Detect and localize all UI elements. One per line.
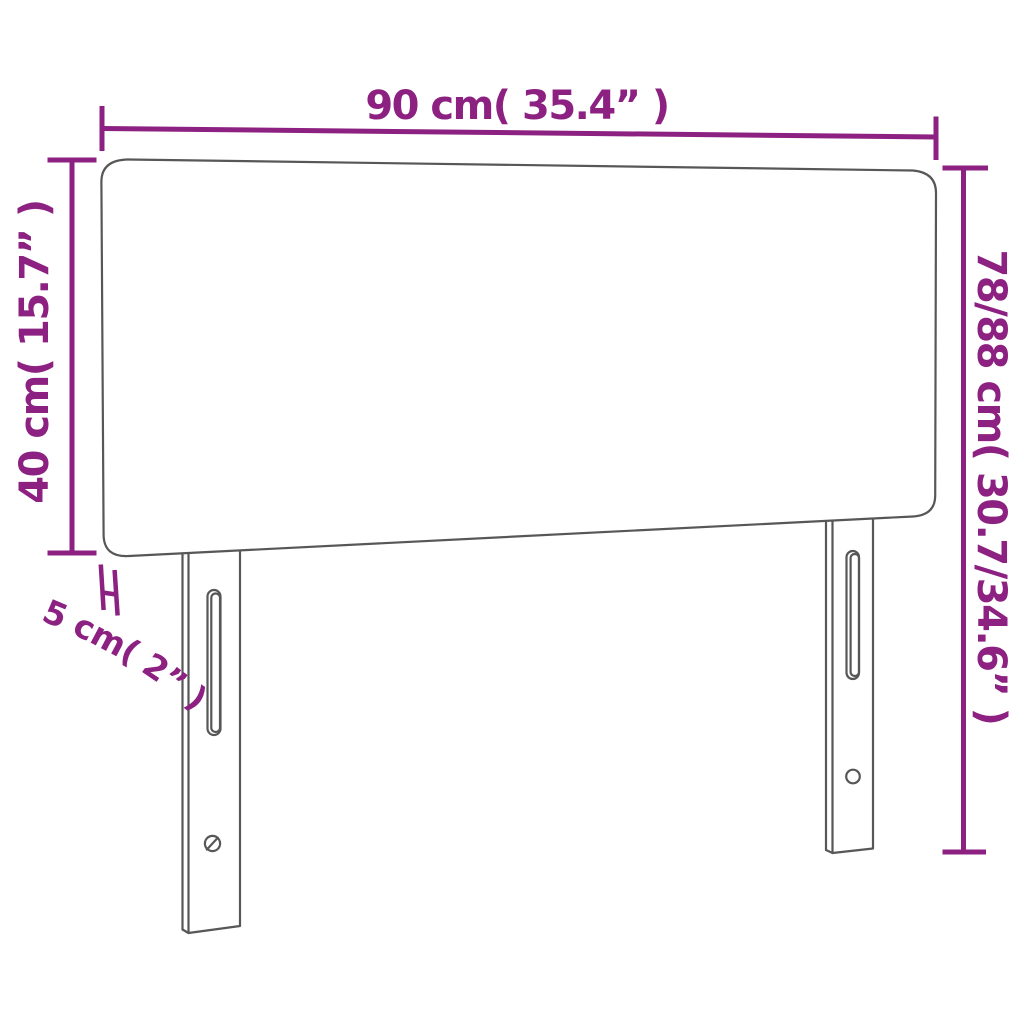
right-leg-screw-hole xyxy=(846,770,860,784)
left-leg xyxy=(183,552,241,934)
headboard-outline xyxy=(101,160,936,934)
width-dimension-label: 90 cm( 35.4” ) xyxy=(365,83,668,129)
left-leg-slot xyxy=(208,590,221,735)
thickness-dimension-line xyxy=(102,593,116,595)
panel-height-dimension-label: 40 cm( 15.7” ) xyxy=(12,200,58,503)
thickness-dimension xyxy=(101,565,118,616)
right-leg xyxy=(826,518,873,853)
total-height-dimension-label: 78/88 cm( 30.7/34.6” ) xyxy=(968,250,1014,725)
thickness-tick-outer xyxy=(101,565,104,611)
width-dimension-line xyxy=(102,129,936,138)
headboard-panel xyxy=(101,160,936,557)
right-leg-slot xyxy=(847,551,860,679)
headboard-dimension-diagram: 90 cm( 35.4” ) 40 cm( 15.7” ) 78/88 cm( … xyxy=(0,0,1024,1024)
